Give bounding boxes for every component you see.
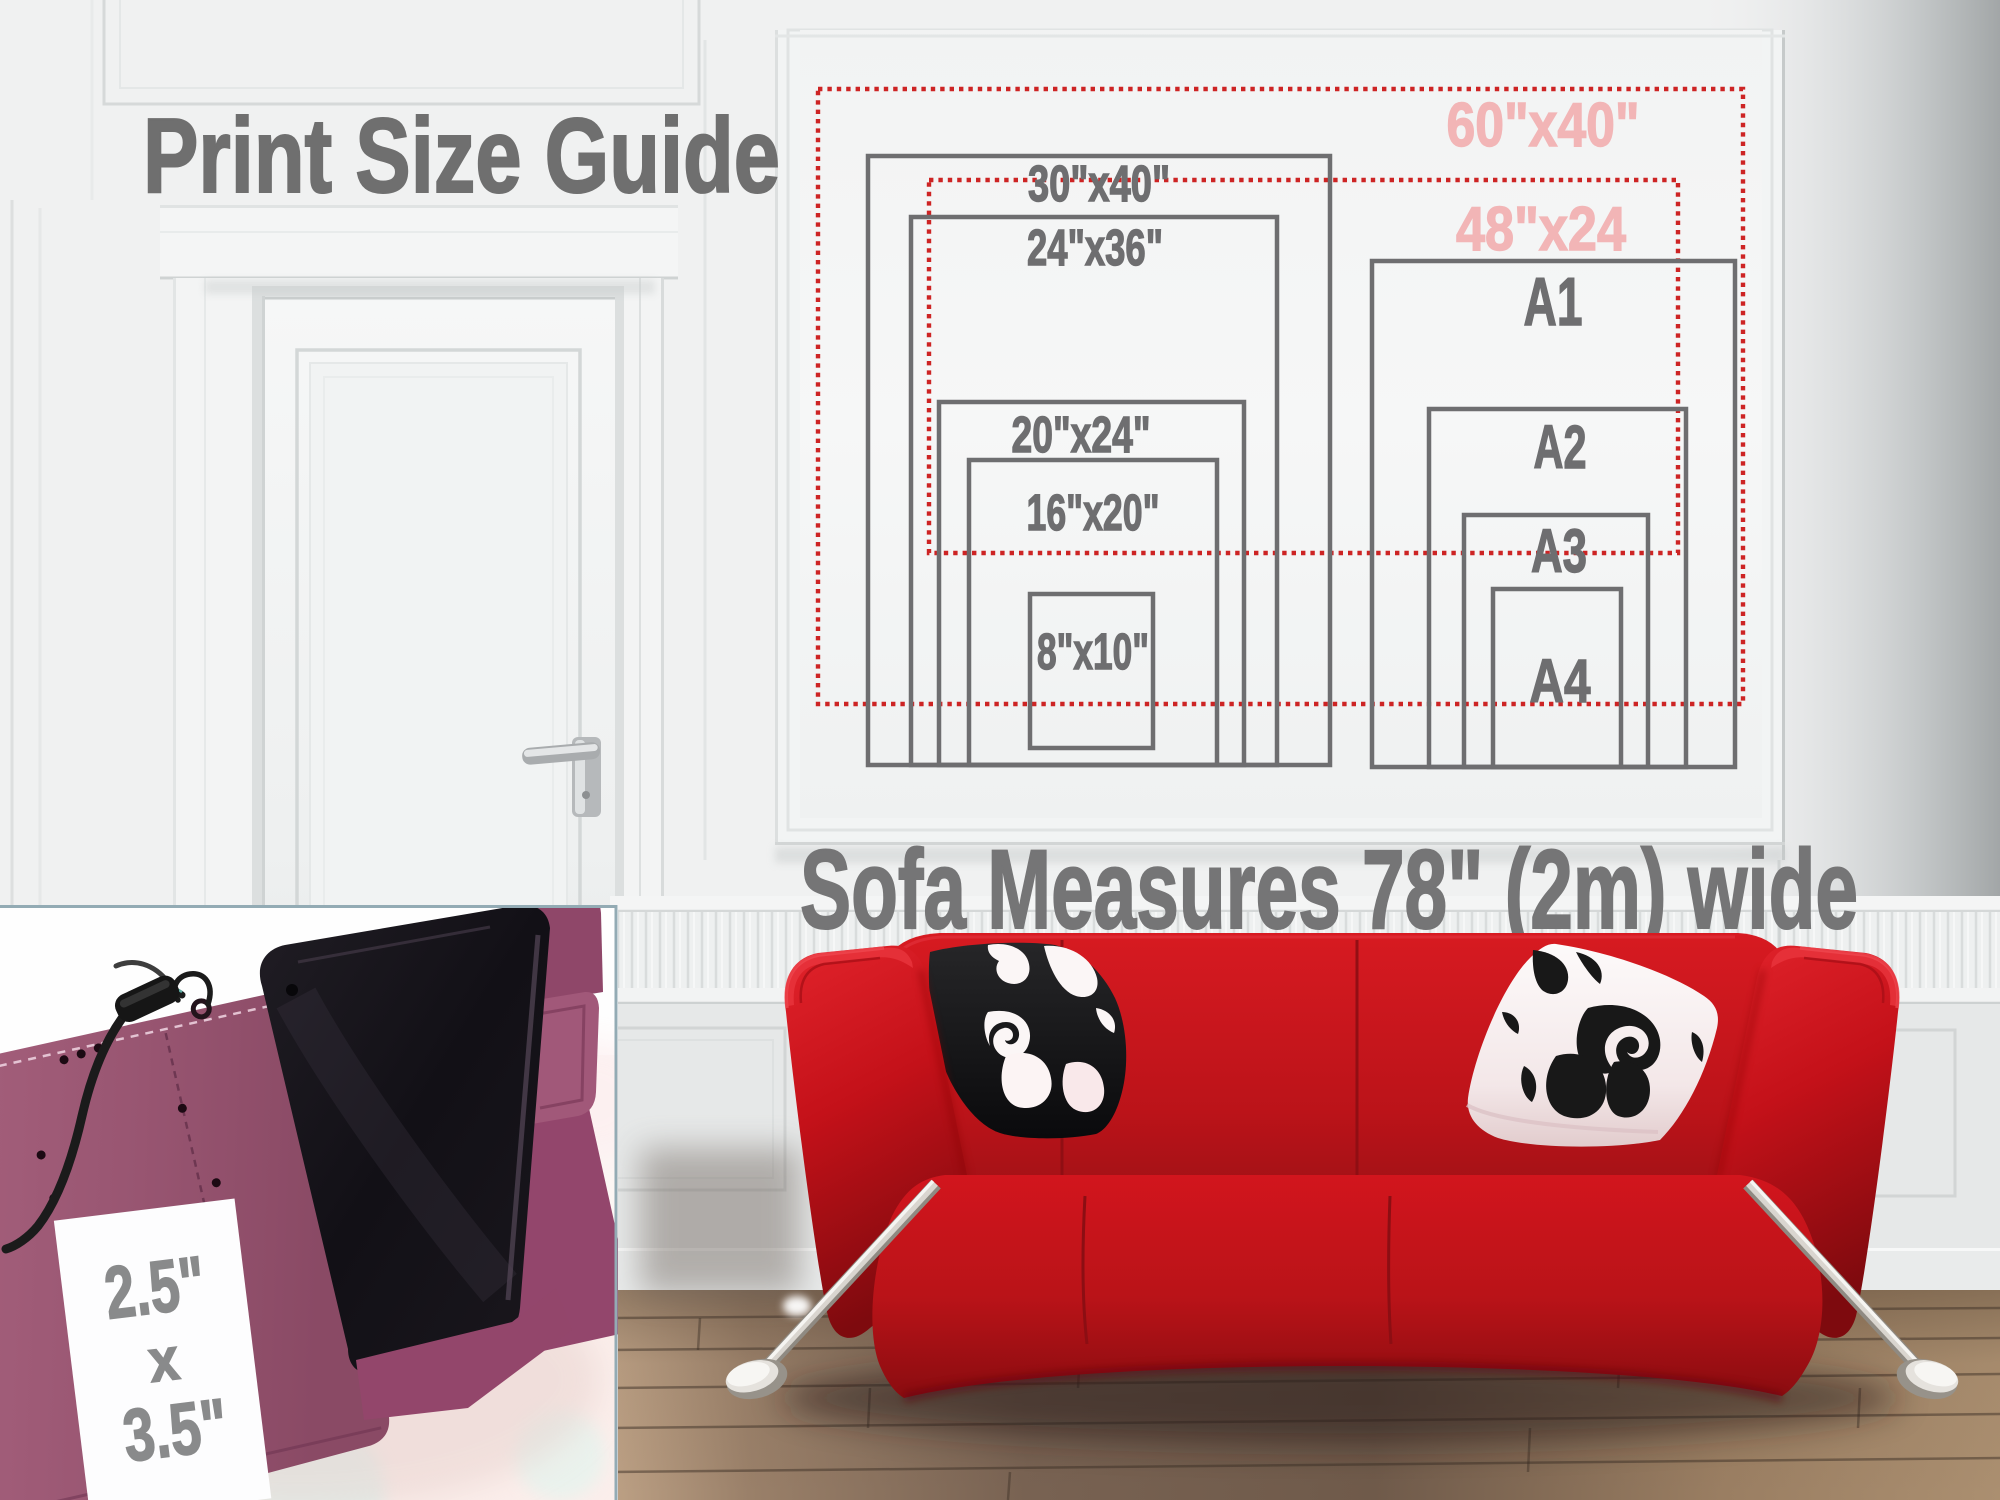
svg-text:24"x36": 24"x36" (1027, 219, 1163, 276)
svg-text:A1: A1 (1524, 264, 1583, 340)
svg-text:48"x24: 48"x24 (1456, 195, 1626, 264)
svg-text:A4: A4 (1530, 647, 1591, 715)
svg-text:2.5": 2.5" (100, 1240, 209, 1335)
svg-text:8"x10": 8"x10" (1037, 623, 1149, 680)
svg-text:30"x40": 30"x40" (1028, 155, 1170, 212)
svg-text:Print Size Guide: Print Size Guide (143, 97, 780, 215)
svg-text:60"x40": 60"x40" (1447, 91, 1640, 160)
svg-text:16"x20": 16"x20" (1027, 484, 1160, 541)
svg-text:A3: A3 (1531, 517, 1587, 585)
svg-text:3.5": 3.5" (119, 1382, 232, 1477)
svg-text:A2: A2 (1534, 413, 1587, 481)
svg-text:20"x24": 20"x24" (1012, 406, 1151, 463)
